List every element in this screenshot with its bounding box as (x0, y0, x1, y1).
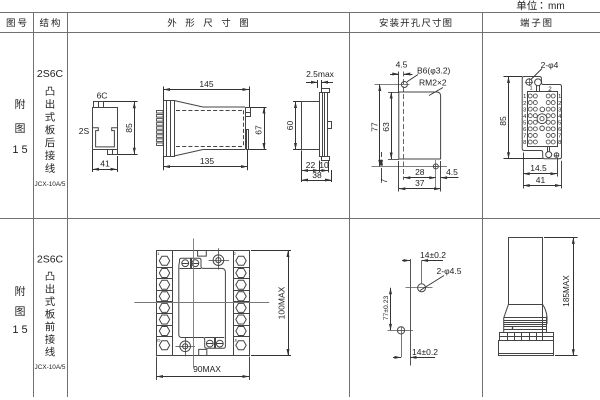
svg-text:4.5: 4.5 (396, 60, 408, 70)
svg-text:2-φ4.5: 2-φ4.5 (437, 266, 462, 276)
svg-text:41: 41 (536, 175, 546, 185)
svg-text:28: 28 (415, 167, 425, 177)
svg-text:JCX-10A/5: JCX-10A/5 (35, 181, 66, 188)
svg-text:8: 8 (523, 140, 526, 146)
svg-text:7: 7 (558, 134, 561, 140)
svg-text:90MAX: 90MAX (193, 364, 221, 374)
svg-text:1: 1 (558, 94, 561, 100)
svg-text:mm: mm (548, 1, 565, 12)
svg-text:6: 6 (558, 127, 561, 133)
svg-text:77±0.23: 77±0.23 (383, 296, 390, 321)
svg-text:2S6C: 2S6C (37, 68, 64, 80)
svg-text:145: 145 (199, 79, 213, 89)
svg-text:60: 60 (285, 121, 295, 131)
svg-text:6: 6 (523, 127, 526, 133)
svg-text:2S: 2S (79, 126, 90, 136)
svg-text:3: 3 (558, 107, 561, 113)
svg-text:15: 15 (156, 338, 161, 343)
svg-text:1: 1 (157, 251, 160, 256)
svg-text:1 5: 1 5 (12, 324, 27, 336)
svg-text:6C: 6C (97, 91, 108, 101)
svg-text:85: 85 (498, 116, 508, 126)
svg-text:67: 67 (254, 125, 264, 135)
svg-text:4: 4 (523, 114, 527, 120)
svg-text:2-φ4: 2-φ4 (541, 60, 559, 70)
svg-text:10: 10 (319, 160, 329, 170)
svg-text:77: 77 (369, 122, 379, 132)
svg-text:2: 2 (234, 251, 237, 256)
svg-text:1 5: 1 5 (12, 144, 27, 156)
svg-text:1: 1 (523, 94, 526, 100)
svg-text:JCX-10A/5: JCX-10A/5 (35, 364, 66, 371)
svg-text:185MAX: 185MAX (562, 275, 571, 307)
svg-text:14.5: 14.5 (530, 163, 547, 173)
svg-text:14±0.2: 14±0.2 (412, 347, 438, 357)
svg-text:14±0.2: 14±0.2 (420, 250, 446, 260)
svg-text:100MAX: 100MAX (277, 286, 287, 319)
svg-text:37: 37 (415, 178, 425, 188)
svg-text:4.5: 4.5 (446, 167, 458, 177)
svg-text:2: 2 (558, 101, 561, 107)
svg-text:85: 85 (124, 123, 134, 133)
svg-text:63: 63 (381, 122, 391, 132)
svg-text:2S6C: 2S6C (37, 254, 64, 266)
svg-text:B6(φ3.2): B6(φ3.2) (417, 66, 451, 76)
svg-text:3: 3 (523, 107, 526, 113)
svg-text:2: 2 (523, 101, 526, 107)
svg-text:8: 8 (558, 140, 561, 146)
svg-text:135: 135 (200, 156, 214, 166)
svg-text:38: 38 (312, 170, 322, 180)
svg-text:7: 7 (379, 178, 389, 183)
svg-text:5: 5 (523, 120, 526, 126)
svg-text:41: 41 (100, 158, 110, 168)
svg-text:22: 22 (306, 160, 316, 170)
svg-text:16: 16 (233, 338, 238, 343)
svg-text:5: 5 (558, 120, 561, 126)
svg-text:RM2×2: RM2×2 (419, 78, 447, 88)
svg-text:1: 1 (529, 85, 532, 91)
svg-text:7: 7 (523, 134, 526, 140)
svg-text:2.5max: 2.5max (306, 69, 335, 79)
